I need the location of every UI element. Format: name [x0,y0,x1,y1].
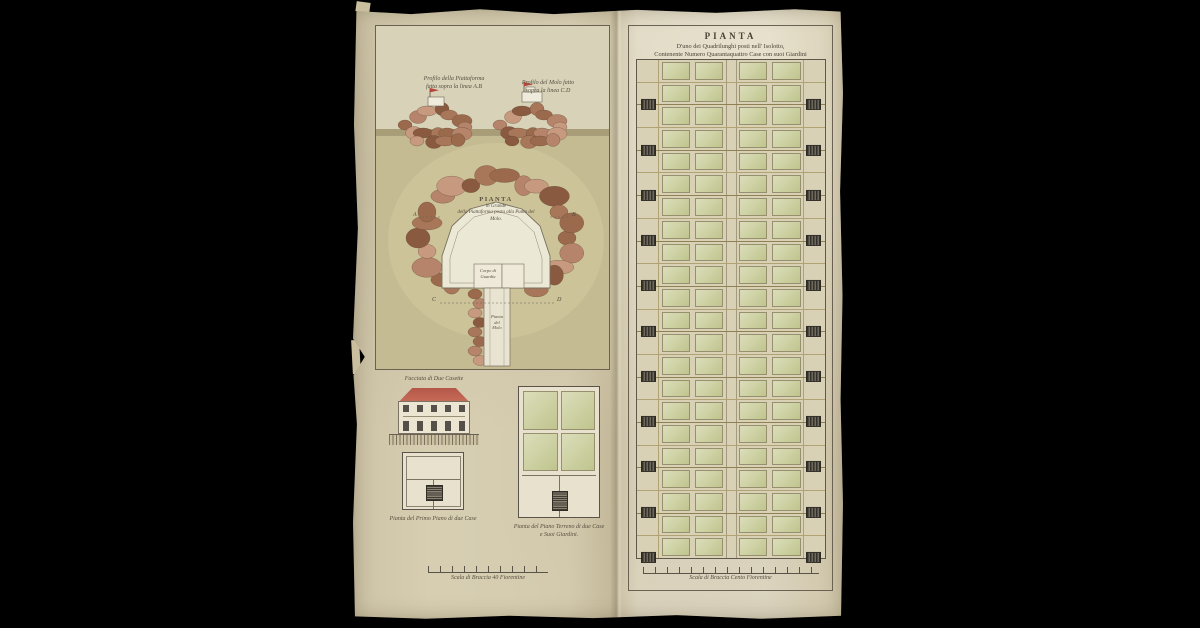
stairwell-block [641,280,656,291]
rock [558,231,576,245]
stairwell-block [641,190,656,201]
profile-right-caption: Profilo del Molo fatto sopra la linea C.… [500,80,596,95]
garden-plot [739,198,767,216]
rock [468,289,482,299]
stairwell-block [806,371,821,382]
central-walkway [726,423,737,445]
first-floor-caption: Pianta del Primo Piano di due Case [372,516,494,524]
rock [451,134,465,147]
side-room [502,264,524,288]
grid-row [637,355,825,378]
central-walkway [726,491,737,513]
guard-room-label: Corpo di Guardia [472,268,504,279]
harbour-inset-frame: Profilo della Piattaforma fatta sopra la… [375,25,610,370]
central-walkway [726,242,737,264]
garden-plot [662,85,690,103]
garden-plot [662,402,690,420]
garden-plot [695,402,723,420]
garden-plot [695,153,723,171]
garden-plot [662,493,690,511]
quadrangle-panel-frame: PIANTA D'uno dei Quadrilunghi posti nell… [628,25,833,591]
garden-plot [662,357,690,375]
garden-plot [523,391,558,430]
grid-row [637,536,825,558]
garden-plot [739,266,767,284]
garden-plot [739,289,767,307]
garden-plot [695,516,723,534]
upper-windows [403,405,465,412]
garden-plot [739,107,767,125]
garden-plot [695,334,723,352]
garden-plot [772,130,800,148]
garden-plot [695,198,723,216]
facade-elevation [398,388,470,445]
garden-plot [523,433,558,472]
stairwell-block [806,507,821,518]
garden-plot [739,425,767,443]
stairwell-block [641,99,656,110]
garden-plot [739,357,767,375]
garden-plot [662,380,690,398]
stairwell-block [641,371,656,382]
rock [406,228,430,248]
garden-plot [739,62,767,80]
foundation-hatch [389,434,479,445]
garden-plot [662,516,690,534]
central-walkway [726,264,737,286]
grid-row [637,173,825,196]
garden-plot [739,312,767,330]
stairwell-block [806,326,821,337]
garden-plot [772,380,800,398]
rock [412,257,442,277]
profile-left-caption: Profilo della Piattaforma fatta sopra la… [402,76,506,91]
garden-plot [739,153,767,171]
stairwell-block [641,326,656,337]
scale-caption-left: Scala di Braccia 40 Fiorentine [418,575,558,583]
garden-plot [662,425,690,443]
facade-caption: Facciata di Due Casette [380,376,488,384]
grid-row [637,310,825,333]
garden-plot [662,221,690,239]
stairwell-block [806,190,821,201]
central-walkway [726,355,737,377]
garden-plot [662,334,690,352]
grid-row [637,151,825,174]
ground-floor-plan [518,386,600,518]
garden-plot [772,448,800,466]
grid-row [637,514,825,537]
garden-plot [739,448,767,466]
garden-plot [772,402,800,420]
garden-plot [772,493,800,511]
garden-plot [662,198,690,216]
garden-plot [772,85,800,103]
central-walkway [726,332,737,354]
garden-plot [772,221,800,239]
rock [490,168,520,182]
grid-row [637,423,825,446]
garden-plot [695,175,723,193]
rock [546,134,560,147]
garden-plot [695,289,723,307]
garden-plot [772,153,800,171]
garden-plot [662,62,690,80]
rock [468,346,482,356]
pier-label: Pianta del Molo [479,314,515,331]
garden-plot [739,493,767,511]
central-walkway [726,196,737,218]
facade-body [398,401,470,434]
stairwell-block [806,235,821,246]
stairwell-block [806,552,821,563]
garden-plot [662,312,690,330]
garden-plot [662,153,690,171]
garden-plot [739,402,767,420]
garden-plot [662,470,690,488]
grid-row [637,332,825,355]
grid-row [637,196,825,219]
garden-plot [772,470,800,488]
garden-plot [662,107,690,125]
garden-plot [739,334,767,352]
subtitle: Contenente Numero Quarantaquattro Case c… [629,51,832,59]
garden-plot [662,244,690,262]
house-gardens [523,391,595,471]
rock [410,136,424,146]
lower-openings [403,421,465,431]
platform-plan-title: PIANTA in Grande della Piattaforma posta… [434,196,558,223]
garden-plot [772,62,800,80]
central-walkway [726,105,737,127]
floor-line [403,416,465,417]
garden-plot [695,493,723,511]
garden-plot [695,266,723,284]
staircase-hatch [552,491,568,511]
central-walkway [726,378,737,400]
rock [505,136,519,146]
quadrangle-grid [636,59,826,559]
grid-row [637,219,825,242]
garden-plot [695,130,723,148]
stairwell-block [641,416,656,427]
garden-plot [695,448,723,466]
paper-sheet: Profilo della Piattaforma fatta sopra la… [352,8,844,620]
garden-plot [695,244,723,262]
grid-row [637,446,825,469]
garden-plot [772,175,800,193]
rock [512,106,532,116]
quadrangle-title-block: PIANTA D'uno dei Quadrilunghi posti nell… [629,31,832,59]
garden-plot [739,85,767,103]
garden-plot [739,244,767,262]
stairwell-block [806,280,821,291]
garden-plot [695,85,723,103]
garden-plot [662,130,690,148]
ground-floor-caption: Pianta del Piano Terreno di due Case e S… [494,524,624,539]
letter-c: C [432,297,436,305]
scale-caption-right: Scala di Braccia Cento Fiorentine [629,575,832,581]
garden-plot [772,107,800,125]
stairwell-block [641,507,656,518]
garden-plot [772,516,800,534]
subtitle: D'uno dei Quadrilunghi posti nell' Isolo… [629,43,832,51]
grid-row [637,60,825,83]
scale-bar-right [643,567,819,574]
central-walkway [726,219,737,241]
grid-row [637,242,825,265]
garden-plot [739,470,767,488]
garden-plot [739,130,767,148]
rock [560,243,584,263]
garden-plot [695,425,723,443]
garden-plot [561,433,596,472]
garden-plot [772,312,800,330]
garden-plot [695,470,723,488]
stairwell-block [806,416,821,427]
stairwell-block [641,235,656,246]
garden-plot [739,538,767,556]
grid-row [637,264,825,287]
stairwell-block [806,99,821,110]
stairwell-block [806,461,821,472]
first-floor-plan [402,452,464,510]
letter-b: B [572,212,576,220]
central-walkway [726,446,737,468]
garden-plot [772,266,800,284]
garden-plot [772,538,800,556]
garden-plot [662,266,690,284]
central-walkway [726,173,737,195]
garden-plot [772,425,800,443]
garden-plot [695,312,723,330]
grid-row [637,378,825,401]
central-walkway [726,83,737,105]
garden-plot [772,244,800,262]
grid-row [637,105,825,128]
central-walkway [726,151,737,173]
grid-row [637,128,825,151]
stairwell-block [806,144,821,155]
page-title: PIANTA [629,31,832,43]
central-walkway [726,514,737,536]
garden-plot [662,289,690,307]
stairwell-block [641,144,656,155]
garden-plot [772,334,800,352]
side-rooms-strip [803,60,825,82]
scanned-drawing-stage: Profilo della Piattaforma fatta sopra la… [0,0,1200,628]
garden-plot [561,391,596,430]
grid-rows [637,60,825,558]
garden-plot [695,62,723,80]
rock [417,106,437,116]
garden-plot [739,175,767,193]
central-walkway [726,400,737,422]
garden-plot [772,289,800,307]
garden-plot [662,538,690,556]
roof [395,388,473,401]
garden-plot [695,107,723,125]
grid-row [637,400,825,423]
central-walkway [726,60,737,82]
grid-row [637,83,825,106]
garden-plot [695,357,723,375]
grid-row [637,287,825,310]
garden-plot [695,538,723,556]
grid-row [637,491,825,514]
stairwell-block [641,552,656,563]
garden-plot [739,516,767,534]
central-walkway [726,287,737,309]
garden-plot [695,221,723,239]
letter-d: D [557,297,561,305]
garden-plot [739,380,767,398]
grid-row [637,468,825,491]
stairwell-block [641,461,656,472]
garden-plot [739,221,767,239]
garden-plot [695,380,723,398]
letter-a: A [413,212,417,220]
garden-plot [772,198,800,216]
central-walkway [726,310,737,332]
scale-bar-left [428,566,548,573]
central-walkway [726,468,737,490]
garden-plot [662,448,690,466]
side-rooms-strip [637,60,659,82]
staircase-hatch [426,485,443,501]
central-walkway [726,536,737,558]
garden-plot [772,357,800,375]
central-walkway [726,128,737,150]
garden-plot [662,175,690,193]
